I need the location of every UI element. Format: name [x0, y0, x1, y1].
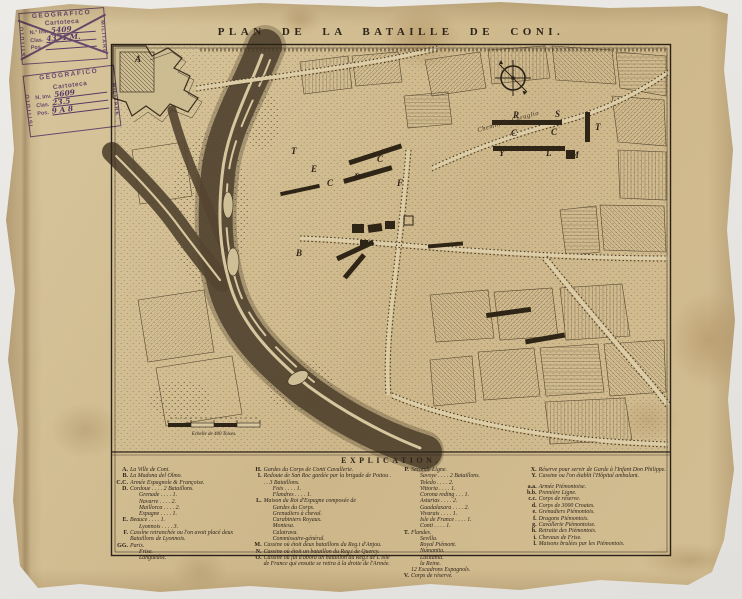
legend-column-1: A.La Ville de Coni.B.La Madona del Olmo.…	[113, 467, 247, 580]
legend-text: Cassine ou l'on établit l'Hôpital ambula…	[539, 473, 639, 479]
map-label: C	[511, 128, 518, 138]
legend-entry: O.Cassine où fût d'abord un bataillon du…	[249, 555, 392, 568]
map-title: PLAN DE LA BATAILLE DE CONI.	[111, 26, 671, 38]
map-label: F	[396, 178, 403, 188]
map-label: E	[310, 164, 317, 174]
library-stamp-crossed: GEOGRAFICO ISTITUTO MILITARE Cartoteca N…	[18, 7, 107, 65]
map-label: C	[551, 127, 558, 137]
map-label: D	[353, 172, 361, 182]
map-label: L	[545, 148, 552, 158]
map-label: C	[327, 178, 334, 188]
legend-text: Redoute de San Roc gardée par la brigade…	[264, 473, 392, 486]
legend-header: EXPLICATION.	[113, 456, 669, 465]
legend-text: Cassine retranchée ou l'on avoit placé d…	[130, 530, 245, 543]
legend-entry: V.Corps de réserve.	[396, 573, 520, 579]
legend-column-4: X.Réserve pour servir de Garde à l'Infan…	[522, 467, 669, 580]
legend-text: Cassine où fût d'abord un bataillon du R…	[264, 555, 392, 568]
legend-entry: F.Cassine retranchée ou l'on avoit placé…	[115, 530, 245, 543]
legend-text: Maisons brulées par les Piémontois.	[539, 541, 625, 547]
library-stamp: GEOGRAFICO ISTITUTO MILITARE Cartoteca N…	[23, 65, 122, 138]
legend-key: l.	[524, 541, 539, 547]
legend-key	[115, 555, 130, 561]
map-label: S	[555, 109, 560, 119]
legend-entry: l.Maisons brulées par les Piémontois.	[524, 541, 667, 547]
map-label: T	[291, 146, 297, 156]
legend-key: V.	[396, 573, 411, 579]
legend-column-3: P.Seconde Ligne.Savoye . . . . 2 Bataill…	[394, 467, 522, 580]
legend-key: O.	[249, 555, 264, 568]
legend-columns: A.La Ville de Coni.B.La Madona del Olmo.…	[113, 467, 669, 580]
legend-column-2: H.Gardes du Corps de Conti Cavallerie.I.…	[247, 467, 394, 580]
legend-text: Languedoc.	[130, 555, 167, 561]
legend-key: I.	[249, 473, 264, 486]
map-label: C	[377, 154, 384, 164]
scanned-map-sheet: ABTCDECFYRSCCTLMChemin de CaraglioEchell…	[0, 0, 742, 599]
legend-key: Y.	[524, 473, 539, 479]
stamp-field-label: Clas.	[30, 37, 47, 44]
legend-panel: EXPLICATION. A.La Ville de Coni.B.La Mad…	[113, 456, 669, 552]
map-label: A	[134, 54, 141, 64]
map-label: B	[295, 248, 302, 258]
legend-entry: Y.Cassine ou l'on établit l'Hôpital ambu…	[524, 473, 667, 479]
legend-entry: I.Redoute de San Roc gardée par la briga…	[249, 473, 392, 486]
map-label: T	[595, 122, 601, 132]
legend-text: Corps de réserve.	[411, 573, 453, 579]
legend-key: F.	[115, 530, 130, 543]
scale-caption: Echelle de 400 Toises.	[191, 432, 237, 437]
map-label: M	[570, 150, 580, 160]
legend-entry: Languedoc.	[115, 555, 245, 561]
